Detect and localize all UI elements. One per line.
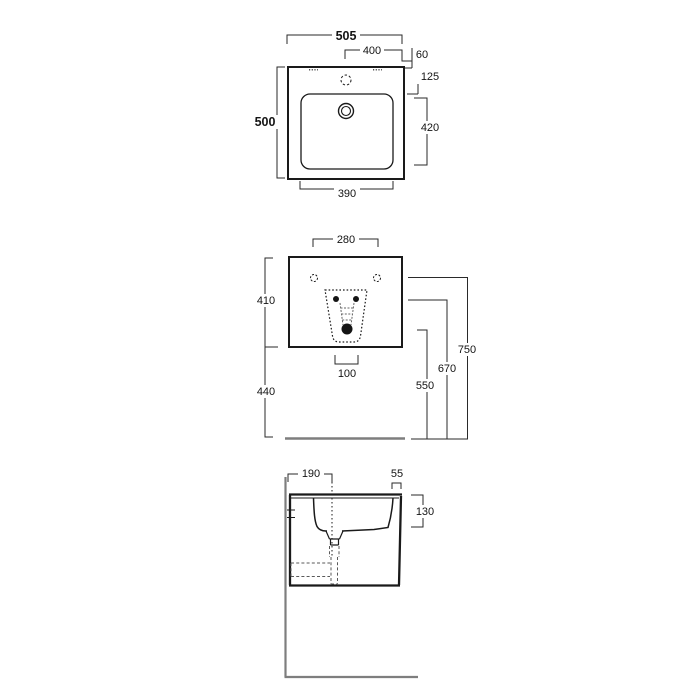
svg-text:505: 505	[336, 29, 357, 43]
dim-label-overall-depth: 500	[251, 115, 278, 129]
dim-label-rear-offset: 60	[416, 49, 428, 61]
dim-label-front-rim: 55	[391, 468, 403, 480]
dim-label-bowl-length: 420	[418, 121, 442, 134]
drain-dot-front	[342, 324, 353, 335]
svg-text:190: 190	[302, 468, 320, 480]
dim-label-overall-width: 505	[332, 29, 360, 43]
svg-text:440: 440	[257, 386, 275, 398]
dim-label-drain-to-wall: 190	[298, 467, 324, 480]
svg-text:55: 55	[391, 468, 403, 480]
svg-text:130: 130	[416, 506, 434, 518]
dim-label-body-height: 410	[253, 294, 280, 307]
dim-label-bowl-depth: 130	[412, 505, 438, 518]
dim-label-clearance-below: 440	[253, 385, 280, 398]
svg-text:410: 410	[257, 295, 275, 307]
dim-label-tap-offset: 125	[421, 71, 439, 83]
dim-label-fixing-span: 280	[333, 233, 359, 246]
svg-text:670: 670	[438, 363, 456, 375]
svg-text:100: 100	[338, 368, 356, 380]
svg-text:400: 400	[363, 45, 381, 57]
dim-label-bowl-width: 390	[334, 187, 360, 200]
svg-text:550: 550	[416, 380, 434, 392]
trap-fixing-dot-right	[353, 296, 359, 302]
dim-label-upper-width: 400	[360, 44, 384, 57]
svg-text:390: 390	[338, 188, 356, 200]
dim-label-drain-span: 100	[338, 368, 356, 380]
trap-fixing-dot-left	[333, 296, 339, 302]
dim-label-drain-height: 550	[412, 379, 438, 392]
svg-text:750: 750	[458, 344, 476, 356]
svg-text:420: 420	[421, 122, 439, 134]
svg-text:60: 60	[416, 49, 428, 61]
dim-label-wall-fixing-height: 750	[454, 343, 480, 356]
washbasin-dimension-drawing: 505 400 60 125 500 420 390 280	[0, 0, 700, 700]
svg-text:125: 125	[421, 71, 439, 83]
dim-label-trap-fixing-height: 670	[434, 362, 460, 375]
svg-text:500: 500	[255, 115, 276, 129]
svg-text:280: 280	[337, 234, 355, 246]
technical-drawing-sheet: 505 400 60 125 500 420 390 280	[0, 0, 700, 700]
